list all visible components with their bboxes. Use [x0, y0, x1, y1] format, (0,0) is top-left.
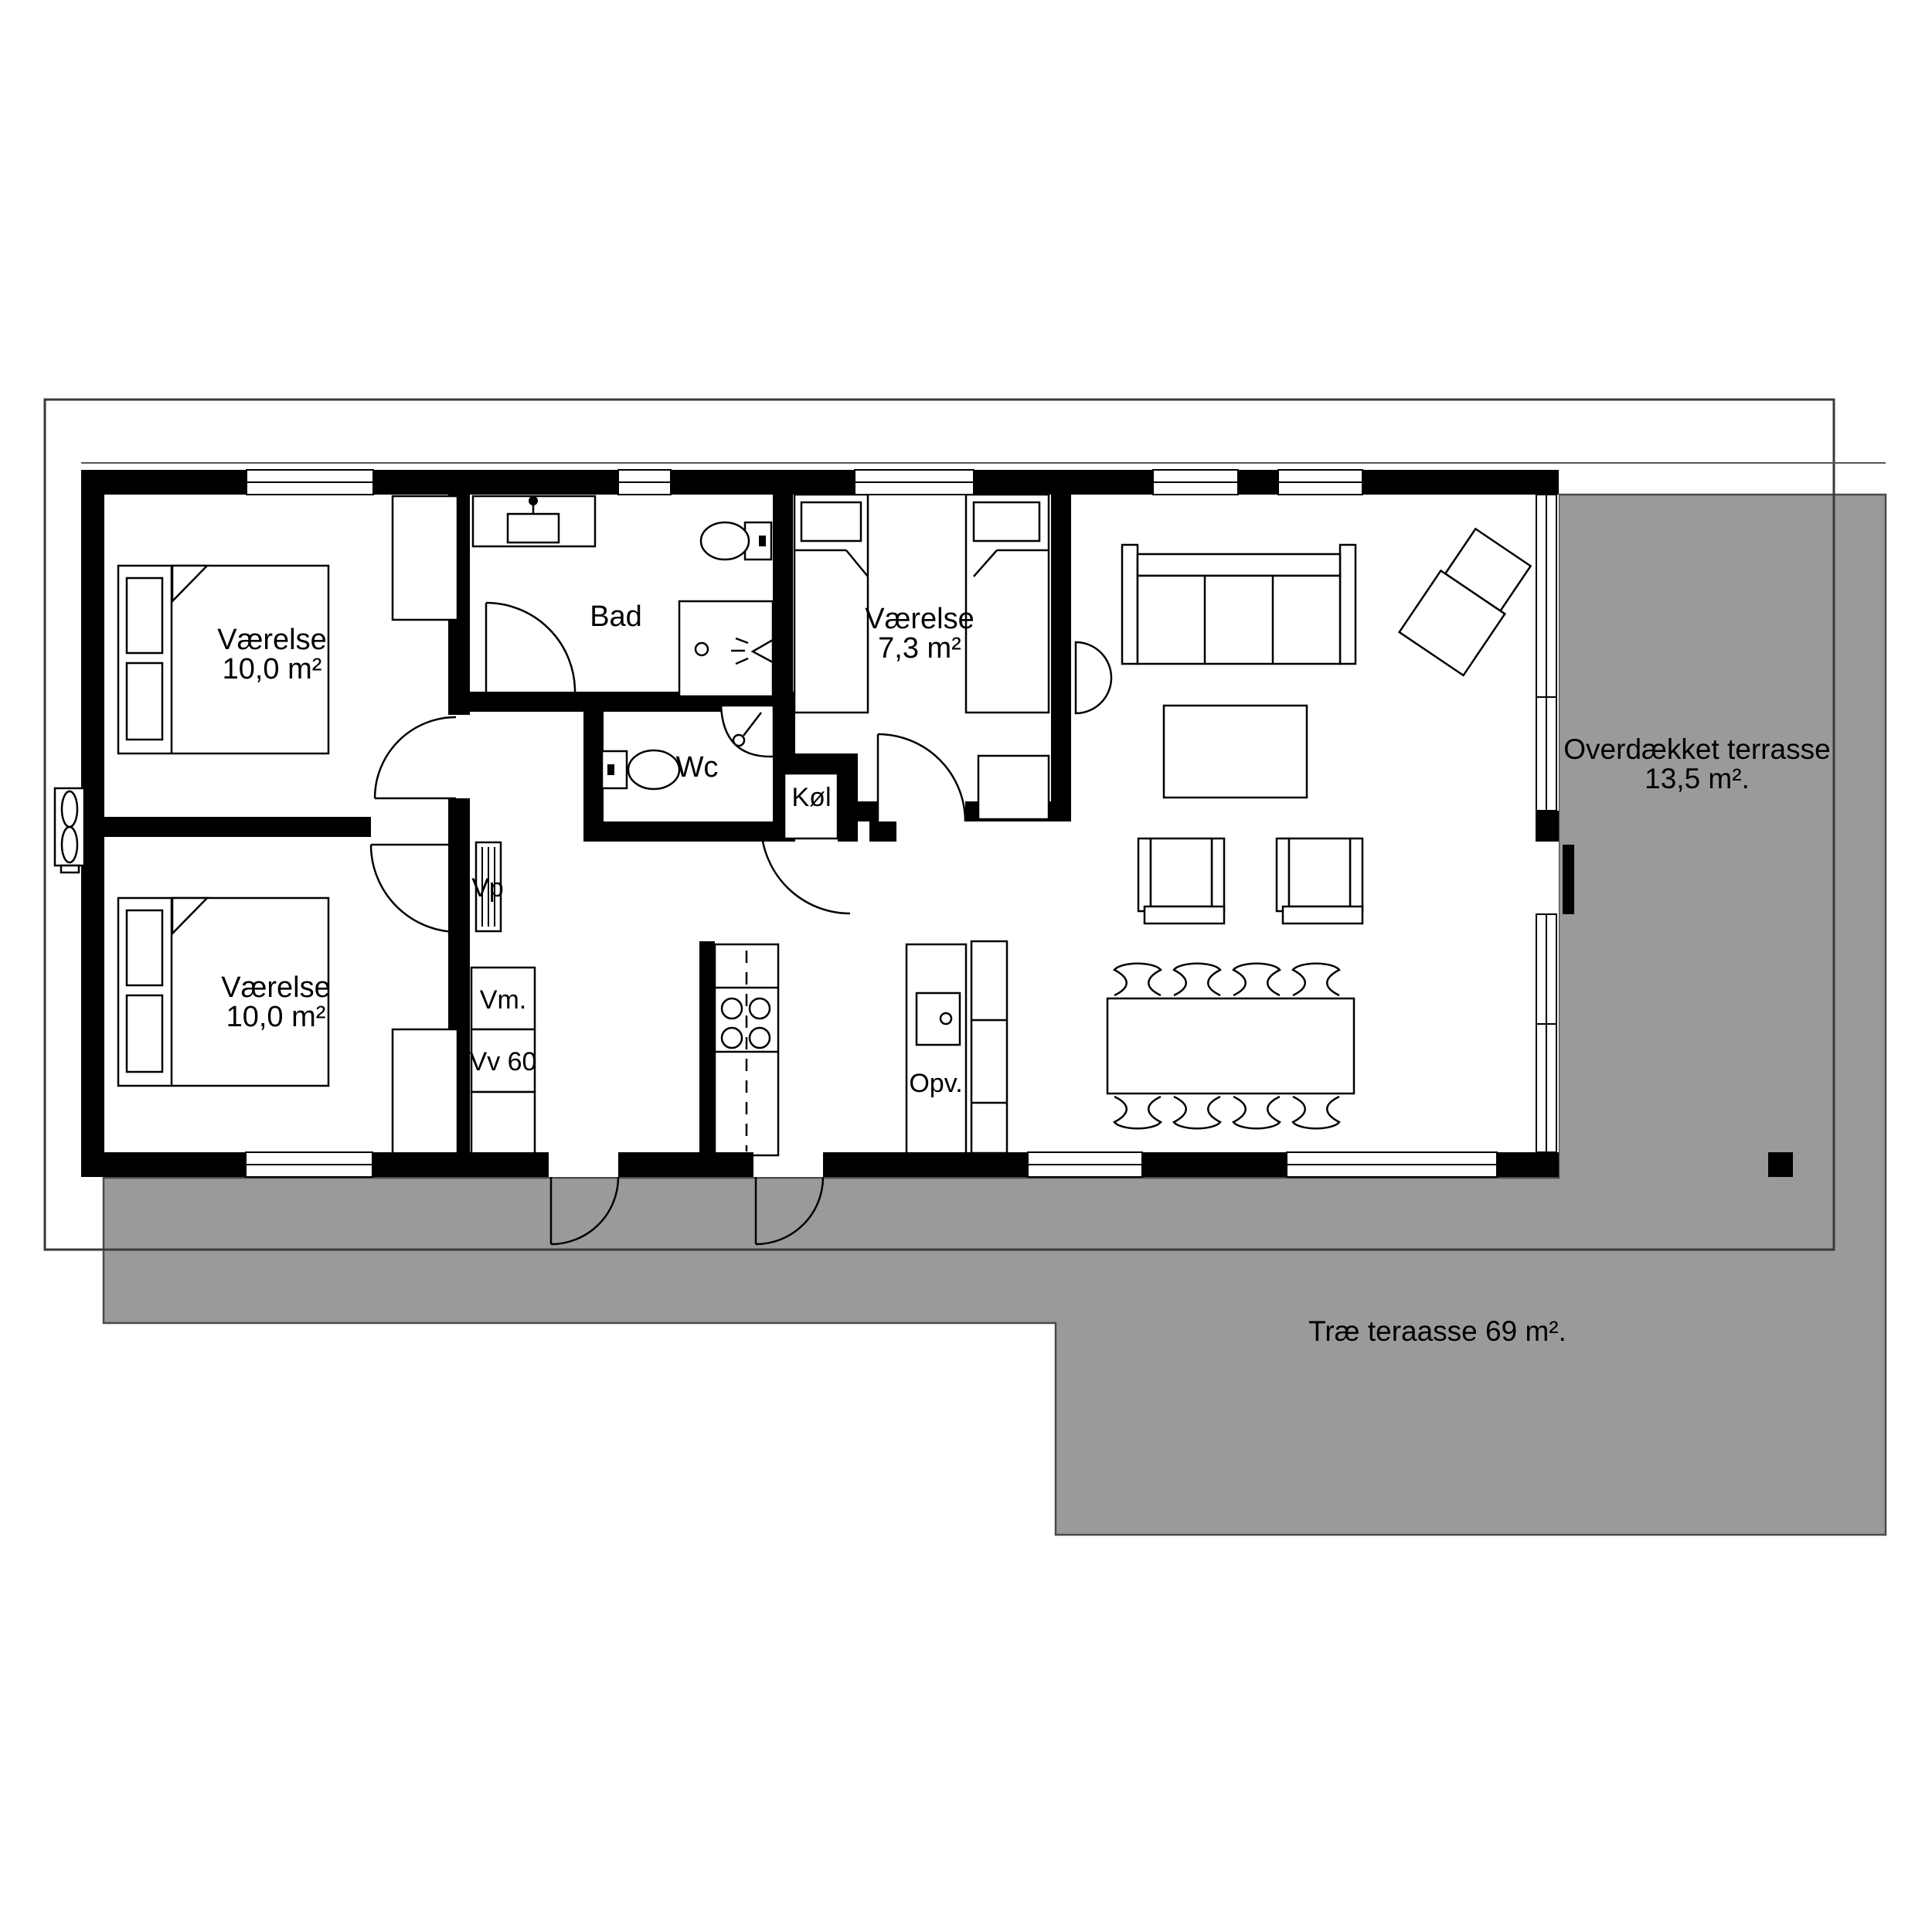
wc-label: Wc: [676, 751, 719, 784]
heat-pump-unit: [55, 788, 84, 872]
kol-label: Køl: [792, 783, 832, 812]
bed-single-left: [794, 495, 868, 713]
armchair-right: [1277, 838, 1362, 923]
desk: [978, 756, 1049, 819]
stove-counter: [715, 944, 778, 1155]
bedroom1-area-label: 10,0 m²: [223, 653, 322, 685]
wardrobe-nw: [393, 496, 457, 620]
bad-label: Bad: [590, 600, 642, 633]
bath-vanity: [473, 496, 595, 546]
toilet-wc: [602, 750, 679, 789]
covered-terrace-label-line1: Overdækket terrasse: [1563, 733, 1830, 765]
sofa: [1122, 545, 1355, 664]
opv-label: Opv.: [909, 1069, 962, 1098]
vm-label: Vm.: [480, 985, 526, 1015]
terrace-door-leaf: [1563, 845, 1574, 914]
bed-single-right: [966, 495, 1049, 713]
vv-label: Vv 60: [470, 1047, 537, 1077]
wood-terrace-label: Træ teraasse 69 m².: [1308, 1315, 1566, 1347]
dining-table: [1107, 998, 1354, 1094]
wardrobe-sw: [393, 1029, 457, 1155]
vp-label: Vp: [471, 873, 504, 903]
bedroom3-area-label: 7,3 m²: [878, 632, 961, 665]
bedroom2-area-label: 10,0 m²: [226, 1001, 326, 1033]
armchair-left: [1138, 838, 1224, 923]
bedroom2-name-label: Værelse: [221, 971, 331, 1004]
toilet-bad: [701, 522, 771, 560]
coffee-table: [1164, 706, 1307, 798]
floor-plan-canvas: Værelse 10,0 m² Værelse 10,0 m² Bad Wc K…: [0, 0, 1932, 1932]
shower: [679, 601, 773, 696]
terrace-post: [1768, 1152, 1793, 1177]
bedroom1-name-label: Værelse: [217, 624, 327, 656]
bedroom3-name-label: Værelse: [865, 603, 975, 635]
kitchen-counter-east: [971, 941, 1007, 1153]
dishwasher-island: [906, 944, 966, 1155]
covered-terrace-label-line2: 13,5 m².: [1645, 763, 1750, 794]
